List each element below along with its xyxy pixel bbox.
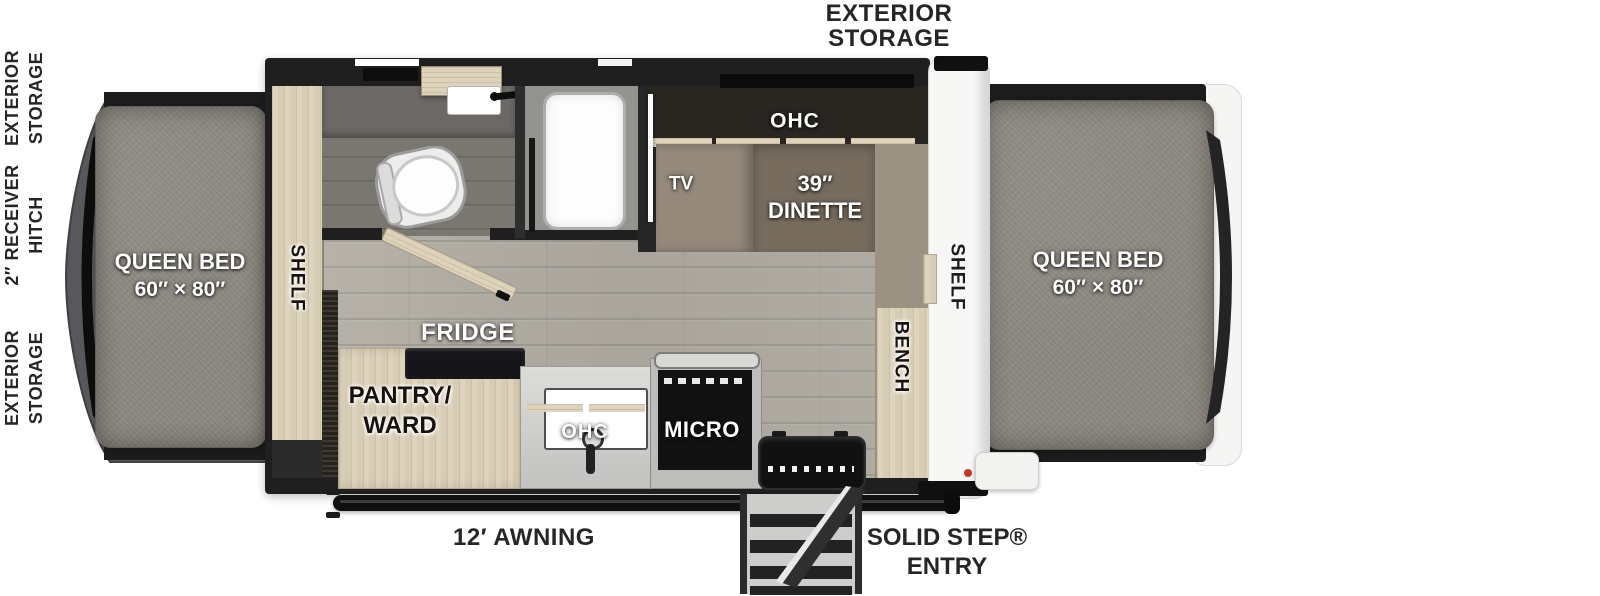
dinette-seat [875, 144, 930, 308]
label-kitchen-ohc: OHC [561, 422, 608, 442]
microwave-vents [664, 378, 746, 384]
label-line: WARD [349, 411, 452, 441]
tv-cabinet [656, 144, 753, 252]
shower-pan [543, 92, 626, 230]
label-line: STORAGE [24, 330, 48, 426]
wardrobe-side-panel [322, 290, 338, 478]
label-line: 60″ × 80″ [1033, 274, 1164, 302]
label-dinette-ohc: OHC [770, 111, 820, 132]
label-micro: MICRO [664, 419, 740, 441]
toilet [370, 146, 472, 230]
front-wall-window [355, 59, 419, 66]
awning-bracket [326, 512, 340, 518]
label-line: EXTERIOR [826, 1, 953, 26]
entry-platform [975, 452, 1039, 490]
entry-marker-dot [964, 469, 972, 477]
overhead-vent [720, 74, 914, 88]
front-wall-base [272, 440, 322, 478]
shelf-bracket [923, 254, 937, 304]
right-bed-tent-flap [1198, 120, 1250, 440]
label-pantry-ward: PANTRY/ WARD [349, 381, 452, 441]
label-line: ENTRY [867, 552, 1027, 581]
tv [648, 94, 653, 222]
cooktop-handle [834, 431, 848, 437]
label-shelf-right: SHELF [948, 243, 967, 310]
roof-vent [363, 68, 418, 81]
label-line: QUEEN BED [115, 248, 246, 276]
label-tv: TV [669, 175, 693, 194]
label-line: 2″ RECEIVER [0, 164, 24, 285]
range-handle [654, 352, 760, 369]
rear-platform-cap-top [934, 56, 988, 71]
bathroom-wall-segment [322, 228, 382, 240]
label-line: 39″ [768, 170, 862, 197]
label-solid-step-entry: SOLID STEP® ENTRY [867, 523, 1027, 581]
label-receiver-hitch: 2″ RECEIVER HITCH [0, 164, 48, 285]
label-line: STORAGE [24, 50, 48, 146]
awning-end-cap [944, 492, 960, 514]
front-wall-window-2 [598, 59, 632, 66]
label-line: HITCH [24, 164, 48, 285]
bathroom-faucet-knob [490, 92, 499, 101]
kitchen-rail [589, 404, 645, 412]
label-line: SOLID STEP® [867, 523, 1027, 552]
cooktop-grate-dots [768, 466, 854, 472]
fridge [405, 348, 525, 379]
awning-bracket [326, 489, 340, 495]
shower-glass-edge [529, 138, 535, 232]
label-queen-bed-left: QUEEN BED 60″ × 80″ [115, 248, 246, 304]
label-line: EXTERIOR [0, 330, 24, 426]
label-line: EXTERIOR [0, 50, 24, 146]
shower-wall-left [515, 86, 525, 238]
label-line: QUEEN BED [1033, 246, 1164, 274]
label-awning: 12′ AWNING [453, 526, 595, 550]
label-fridge: FRIDGE [421, 321, 515, 345]
label-line: DINETTE [768, 197, 862, 224]
label-line: PANTRY/ [349, 381, 452, 411]
label-queen-bed-right: QUEEN BED 60″ × 80″ [1033, 246, 1164, 302]
label-line: 60″ × 80″ [115, 276, 246, 304]
label-line: STORAGE [826, 26, 953, 51]
kitchen-rail [527, 404, 583, 412]
kitchen-faucet-sprayer [586, 444, 595, 474]
label-dinette: 39″ DINETTE [768, 170, 862, 224]
label-exterior-storage-front: EXTERIOR STORAGE [0, 50, 48, 146]
cooktop-grate [758, 436, 866, 490]
entry-steps [730, 486, 870, 596]
floorplan-canvas: EXTERIOR STORAGE 2″ RECEIVER HITCH EXTER… [0, 0, 1600, 596]
label-exterior-storage-top: EXTERIOR STORAGE [826, 1, 953, 51]
label-shelf-left: SHELF [288, 244, 307, 311]
cooktop-handle [772, 431, 786, 437]
label-exterior-storage-front-2: EXTERIOR STORAGE [0, 330, 48, 426]
label-bench: BENCH [892, 321, 911, 394]
